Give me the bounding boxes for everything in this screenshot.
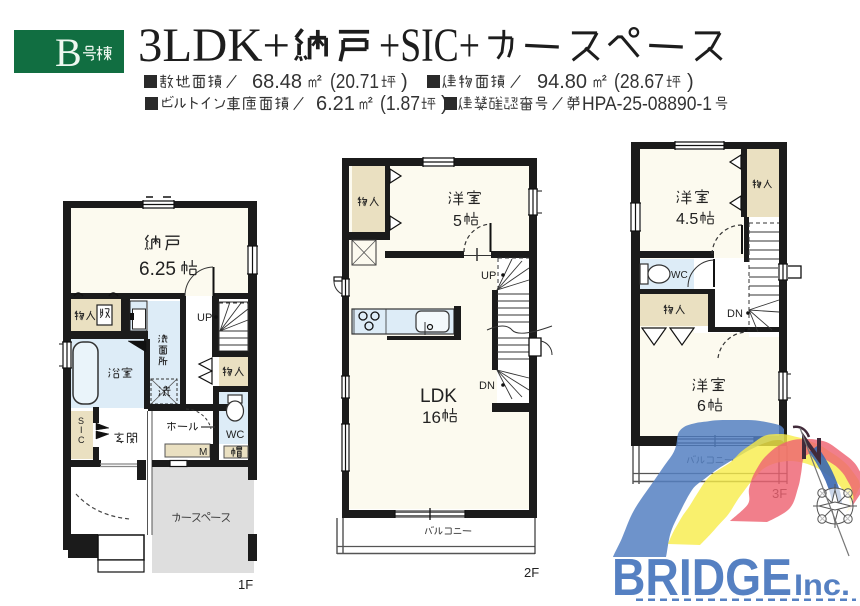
svg-text:): ) [401, 71, 408, 93]
svg-text:BRIDGE: BRIDGE [612, 549, 792, 601]
svg-text:5: 5 [453, 213, 462, 230]
svg-text:LDK: LDK [420, 386, 457, 407]
svg-text:6.25: 6.25 [139, 259, 176, 280]
svg-text:): ) [687, 71, 694, 93]
svg-text:DN: DN [479, 380, 495, 392]
svg-text:B: B [55, 30, 82, 75]
svg-text:(20.71: (20.71 [330, 71, 379, 93]
svg-text:3LDK+: 3LDK+ [138, 19, 290, 72]
svg-text:I: I [80, 425, 83, 435]
svg-text:WC: WC [671, 270, 688, 281]
svg-text:+SIC+: +SIC+ [379, 19, 480, 72]
svg-text:Inc.: Inc. [794, 569, 850, 601]
svg-text:M: M [199, 447, 207, 458]
svg-text:(28.67: (28.67 [614, 71, 664, 93]
svg-text:DN: DN [727, 308, 743, 320]
svg-text:C: C [78, 435, 85, 445]
svg-text:6: 6 [697, 398, 706, 415]
svg-text:(1.87: (1.87 [380, 93, 420, 115]
svg-text:94.80: 94.80 [537, 71, 587, 93]
svg-text:UP: UP [481, 270, 496, 282]
svg-text:68.48: 68.48 [252, 71, 302, 93]
svg-text:WC: WC [226, 429, 244, 441]
svg-text:16: 16 [422, 408, 441, 427]
svg-text:HPA-25-08890-1: HPA-25-08890-1 [582, 93, 712, 115]
svg-text:4.5: 4.5 [676, 211, 698, 228]
svg-text:6.21: 6.21 [316, 93, 355, 115]
svg-text:UP: UP [197, 312, 212, 324]
svg-text:2F: 2F [524, 565, 539, 580]
svg-text:1F: 1F [238, 577, 253, 592]
